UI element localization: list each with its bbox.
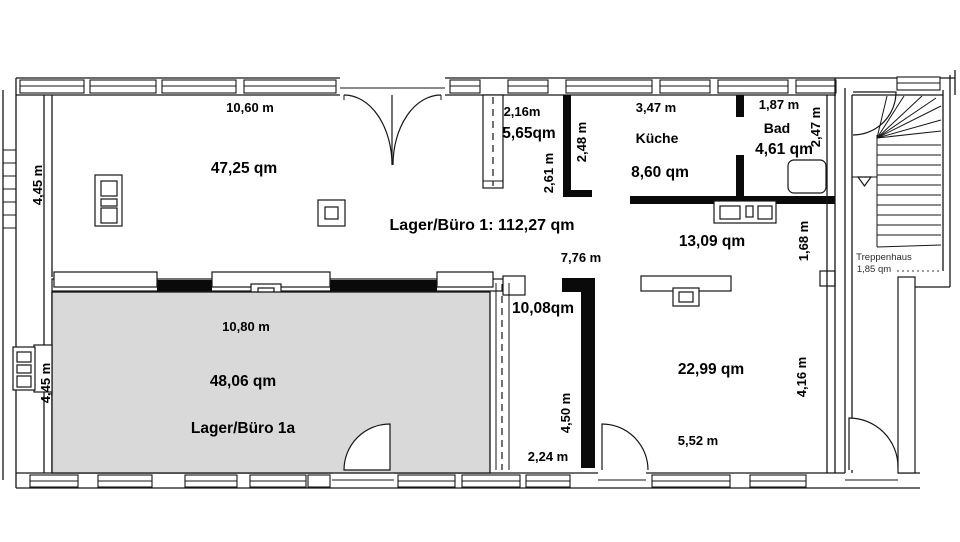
dim-middle-room-depth: 1,68 m xyxy=(796,221,811,261)
area-staircase: 1,85 qm xyxy=(857,264,891,275)
dim-rear-room-depth: 4,16 m xyxy=(794,357,809,397)
right-corridor xyxy=(849,277,915,473)
pillar-center xyxy=(318,200,345,226)
dim-entry-depth-right: 2,48 m xyxy=(574,122,589,162)
dim-kitchen-width: 3,47 m xyxy=(636,100,676,115)
pillar-left xyxy=(95,175,122,226)
area-kitchen: 8,60 qm xyxy=(631,164,689,181)
dim-main-width: 10,60 m xyxy=(226,100,274,115)
dim-rear-room-width: 5,52 m xyxy=(678,433,718,448)
floor-plan-page: 10,60 m 4,45 m 47,25 qm 2,16m 5,65qm 2,6… xyxy=(0,0,960,542)
area-rear-room: 22,99 qm xyxy=(678,361,744,378)
chimney-strip xyxy=(483,95,503,188)
bathtub xyxy=(788,160,826,193)
area-bath: 4,61 qm xyxy=(755,141,813,158)
dim-corridor-width: 2,24 m xyxy=(528,449,568,464)
floor-plan-drawing: 10,60 m 4,45 m 47,25 qm 2,16m 5,65qm 2,6… xyxy=(0,0,960,542)
bottom-wall-windows xyxy=(30,475,806,487)
dim-middle-room-width: 7,76 m xyxy=(561,250,601,265)
dim-entry-depth-left: 2,61 m xyxy=(541,153,556,193)
corridor-door-arc xyxy=(849,418,898,470)
radiator-left xyxy=(13,347,35,390)
area-room-1a: 48,06 qm xyxy=(210,373,276,390)
left-exterior-wall xyxy=(3,78,52,488)
dim-room-1a-depth: 4,45 m xyxy=(38,363,53,403)
area-entry: 5,65qm xyxy=(502,125,555,142)
dim-bath-width: 1,87 m xyxy=(759,97,799,112)
dim-bath-depth: 2,47 m xyxy=(808,107,823,147)
stair-door-arc xyxy=(853,92,896,135)
left-exterior-stair-ticks xyxy=(3,150,16,228)
stair-direction-arrow xyxy=(858,177,871,186)
dim-entry-width: 2,16m xyxy=(504,104,541,119)
dim-corridor-depth: 4,50 m xyxy=(558,393,573,433)
room-name-1a: Lager/Büro 1a xyxy=(191,420,296,437)
area-main-room: 47,25 qm xyxy=(211,160,277,177)
room-name-staircase: Treppenhaus xyxy=(856,252,912,263)
area-corridor: 10,08qm xyxy=(512,300,574,317)
dim-room-1a-width: 10,80 m xyxy=(222,319,270,334)
door-rear-room xyxy=(602,424,648,470)
top-wall-windows xyxy=(20,77,940,93)
room-name-bath: Bad xyxy=(764,120,790,136)
dashed-former-wall xyxy=(496,283,509,470)
label-unit-total: Lager/Büro 1: 112,27 qm xyxy=(390,217,575,234)
rear-divider xyxy=(641,276,731,306)
dim-main-depth: 4,45 m xyxy=(30,165,45,205)
area-middle-room: 13,09 qm xyxy=(679,233,745,250)
double-door-main-room xyxy=(344,95,441,165)
room-name-kitchen: Küche xyxy=(636,130,679,146)
